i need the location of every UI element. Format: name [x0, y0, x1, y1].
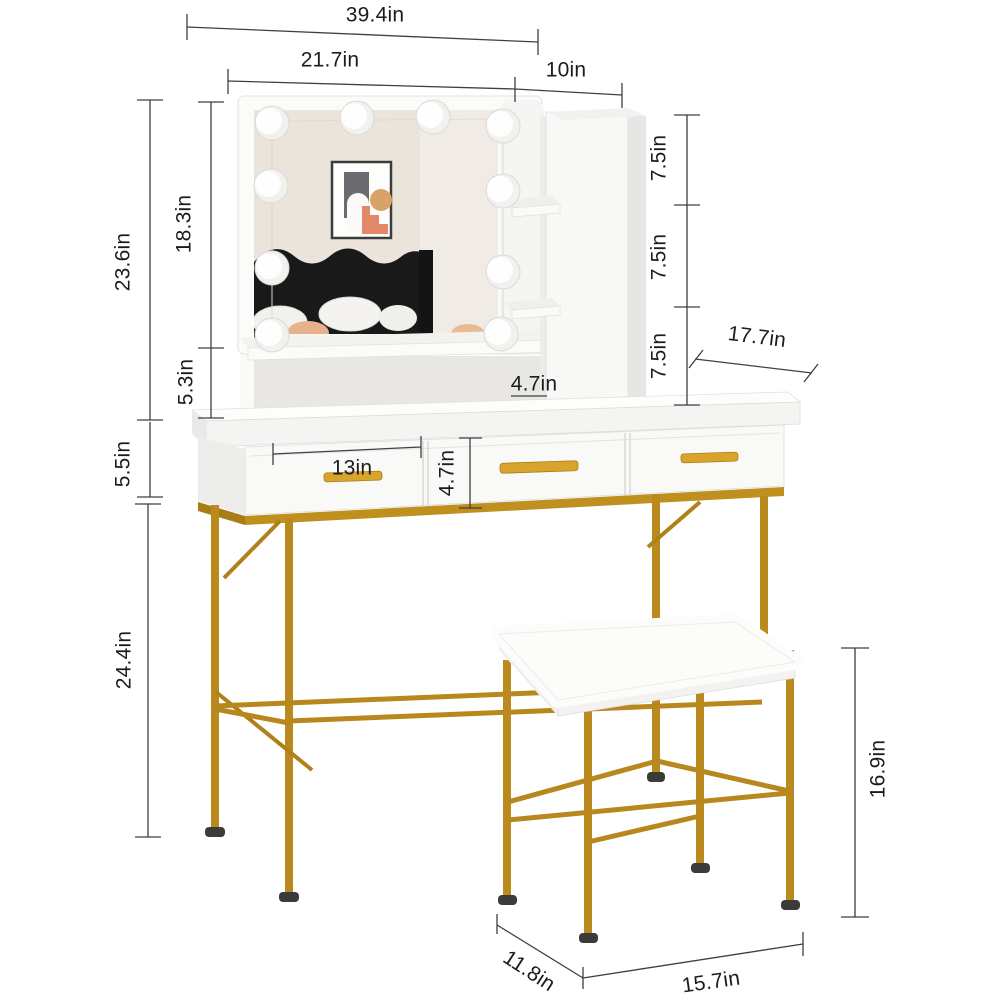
product-dimension-diagram: 39.4in 21.7in 10in 23.6in 18.3in 5.3in 5…: [0, 0, 1000, 1000]
desk-leg-rear-left: [211, 505, 219, 832]
stool-leg-right: [786, 650, 794, 905]
dim-label-upper-total-height: 23.6in: [113, 233, 134, 291]
dim-label-overall-width: 39.4in: [346, 5, 404, 26]
desk-leg-front-left: [285, 518, 293, 897]
bulb: [255, 318, 289, 352]
stool-leg-front-left: [503, 660, 511, 900]
dim-label-shelf-gap-middle: 7.5in: [649, 234, 670, 281]
tower-front: [546, 112, 628, 420]
drawer-box-side: [198, 437, 245, 515]
mirror-reflection: [253, 110, 498, 354]
bulb: [340, 101, 374, 135]
bulb: [486, 255, 520, 289]
vanity-stool: [498, 622, 800, 943]
bulb: [486, 174, 520, 208]
bulb: [484, 317, 518, 351]
dim-label-drawer-section-height: 5.5in: [113, 441, 134, 488]
dim-label-shelf-gap-top: 7.5in: [649, 135, 670, 182]
hutch-unit: [238, 96, 646, 420]
bulb: [254, 169, 288, 203]
dim-line-leg-height: [135, 504, 161, 837]
dim-label-mirror-width: 21.7in: [301, 50, 359, 71]
dim-line-upper-total-height: [137, 100, 163, 420]
dim-label-cabinet-width: 10in: [546, 60, 587, 81]
bulb: [255, 106, 289, 140]
dim-label-mirror-height: 18.3in: [174, 195, 195, 253]
dim-label-leg-height: 24.4in: [114, 631, 135, 689]
stool-feet: [498, 863, 800, 943]
dim-line-stool-height: [841, 648, 869, 917]
reflected-pillow-white-mid: [319, 297, 381, 331]
reflected-headboard-post: [419, 250, 433, 344]
reflected-art-frame: [332, 162, 392, 238]
drawer-handle-right: [681, 452, 738, 463]
dim-label-hutch-gap-height: 5.3in: [176, 359, 197, 406]
dim-label-stool-height: 16.9in: [868, 740, 889, 798]
diagram-artwork: [0, 0, 1000, 1000]
bulb: [255, 251, 289, 285]
dim-line-desk-depth: [689, 350, 818, 382]
dim-line-mirror-height: [198, 102, 224, 418]
dim-label-drawer-height: 4.7in: [437, 450, 458, 497]
bulb: [486, 109, 520, 143]
reflected-pillow-white-right: [379, 305, 417, 331]
dim-line-shelf-gaps: [674, 115, 700, 405]
dim-label-shelf-depth: 4.7in: [511, 374, 558, 395]
dim-label-drawer-width: 13in: [332, 458, 373, 479]
dim-label-shelf-gap-bottom: 7.5in: [649, 333, 670, 380]
dim-line-drawer-section-height: [137, 422, 163, 497]
desk-leg-front-right: [760, 496, 768, 636]
desk-feet: [205, 772, 665, 902]
tower-side: [628, 108, 646, 420]
bulb: [416, 100, 450, 134]
